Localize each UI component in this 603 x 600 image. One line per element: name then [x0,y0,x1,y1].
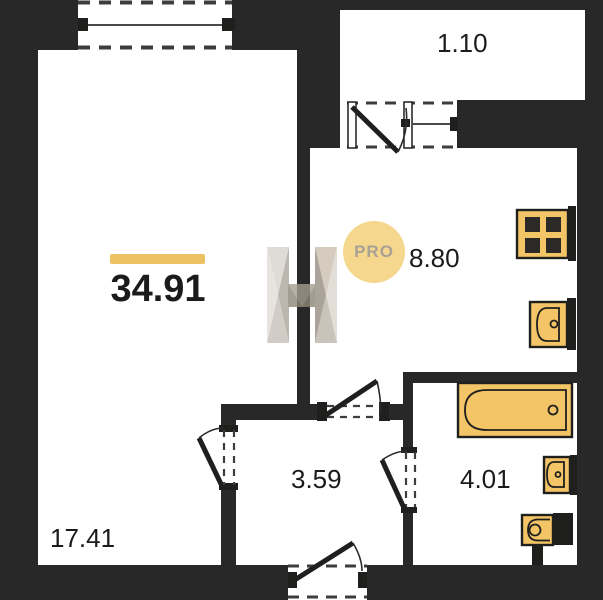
bathroom-door-swing-arc [382,451,407,460]
living-door-leaf [199,438,221,484]
watermark-center [288,284,316,307]
toilet-icon [522,513,573,565]
kitchen-sink-icon [530,298,576,350]
watermark-left-bar [267,247,289,343]
total-area-accent-bar [110,254,205,264]
stove-backplate [568,206,576,261]
watermark-right-bar [315,247,337,343]
washbasin-icon [544,455,577,495]
bathroom-door [382,451,415,508]
entrance-door [288,543,367,597]
pro-watermark-badge: PRO [343,221,405,283]
balcony-window-end-block [450,117,458,131]
living-door-opening [224,430,234,485]
balcony-area-label: 1.10 [437,30,488,56]
kitchen-door [326,381,381,417]
floor-plan: PRO 34.91 17.41 8.80 3.59 4.01 1.10 [0,0,603,600]
watermark-logo [267,247,337,343]
bathroom-door-leaf [382,460,404,508]
window-end-block [78,18,88,31]
kitchen-door-swing-arc [377,381,381,414]
stove-icon [517,206,576,261]
balcony-door-window-unit [347,102,458,152]
toilet-plumbing [532,545,543,565]
kitchen-area-label: 8.80 [409,245,460,271]
toilet-tank [553,513,573,545]
bathroom-area-label: 4.01 [460,466,511,492]
hallway-area-label: 3.59 [291,466,342,492]
window-end-block [222,18,235,31]
entrance-door-leaf [293,543,353,581]
bathroom-door-opening [406,452,415,507]
kitchen-sink-backplate [567,298,576,350]
living-room-window [78,3,235,48]
balcony-door-leaf [352,107,398,152]
pro-badge-label: PRO [354,242,394,262]
kitchen-door-leaf [326,381,377,415]
entrance-door-opening [288,566,367,597]
living-room-area-label: 17.41 [50,525,115,551]
bathtub-icon [458,383,572,437]
living-room-door [199,428,234,485]
living-door-swing-arc [199,428,224,438]
total-area-label: 34.91 [103,270,213,308]
